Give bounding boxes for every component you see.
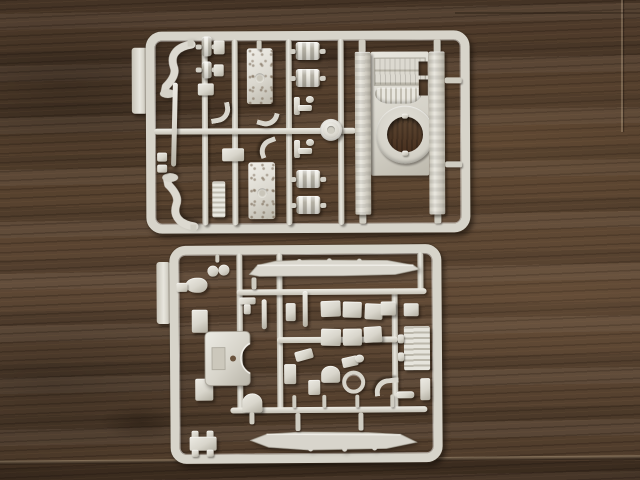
hatch-fitting-part [292,95,316,117]
sprue-gate [251,277,256,289]
sprue-gate [257,40,262,49]
upper-hull-part [355,51,446,214]
teardrop-part [185,278,207,293]
small-bar-part [396,391,414,398]
bracket-with-studs-part [190,431,218,457]
stowage-block-part [192,310,208,333]
twin-knob-part [206,261,230,278]
stowage-box-part [320,300,341,317]
engine-grille-panel-part [404,326,430,370]
idler-wheel-part [320,119,342,141]
small-block-part [286,303,296,321]
sprue-gate [390,394,394,407]
sprue-gate [358,413,363,431]
ring-tab [402,114,408,119]
sprue-gate [292,395,296,408]
grille-tab [398,352,404,361]
fuel-drum-part [296,170,320,188]
hatch-fitting-part [292,138,316,160]
thin-rod-part [262,299,267,329]
small-bracket-part [222,148,244,161]
hull-right-fender [429,51,446,214]
sprue-gate [445,77,462,83]
small-fitting [157,165,167,173]
stowage-box-part [342,301,361,318]
sprue-gate [355,395,359,408]
stowage-box-part [321,329,341,347]
small-fitting [177,283,188,292]
mould-opening [419,61,428,75]
observation-dome-part [242,393,262,412]
small-block-part [198,83,214,95]
riveted-plate-part [247,48,273,104]
small-angle-part [240,297,256,304]
sprue-top [146,30,471,233]
turret-ring-opening [387,116,423,152]
sprue-gate [295,413,300,431]
searchlight-ring-part [339,357,367,391]
half-dome-part [321,366,340,383]
photo-canvas [0,0,640,480]
sprue-gate [359,214,366,224]
sprue-gate [249,412,254,424]
stowage-box-part [404,303,419,316]
small-angle-part [244,304,251,314]
stowage-box-part [363,326,382,343]
ribbed-vent [375,88,422,104]
sprue-gate [445,161,462,167]
stowage-box-part [343,329,362,346]
track-run-part [249,429,419,452]
small-fitting [157,153,167,162]
sprue-gate [434,213,441,223]
turret-ring [376,105,434,163]
small-cylinder-part [202,36,212,56]
periscope-part [284,364,296,384]
small-fitting [308,380,320,395]
small-bracket-part [214,64,224,76]
fender-bracket-part [160,171,206,231]
hull-left-fender [355,52,372,215]
thin-rod-part [303,291,308,327]
fuel-drum-part [296,196,320,214]
small-bracket-part [214,40,225,54]
small-block-part [420,378,430,400]
fuel-drum-part [296,42,320,60]
sprue-bottom [169,244,443,464]
ladder-part [212,181,225,217]
stowage-box-part [381,301,396,315]
lower-hull-plate-part [203,330,261,386]
sprue-gate [322,395,326,408]
riveted-plate-part [248,162,275,219]
fuel-drum-part [296,69,320,87]
grille-tab [398,334,404,343]
track-run-part [247,257,421,279]
ring-tab [402,151,408,156]
plank-bottom [0,461,640,480]
small-cylinder-part [202,61,212,78]
mould-opening [419,79,428,95]
